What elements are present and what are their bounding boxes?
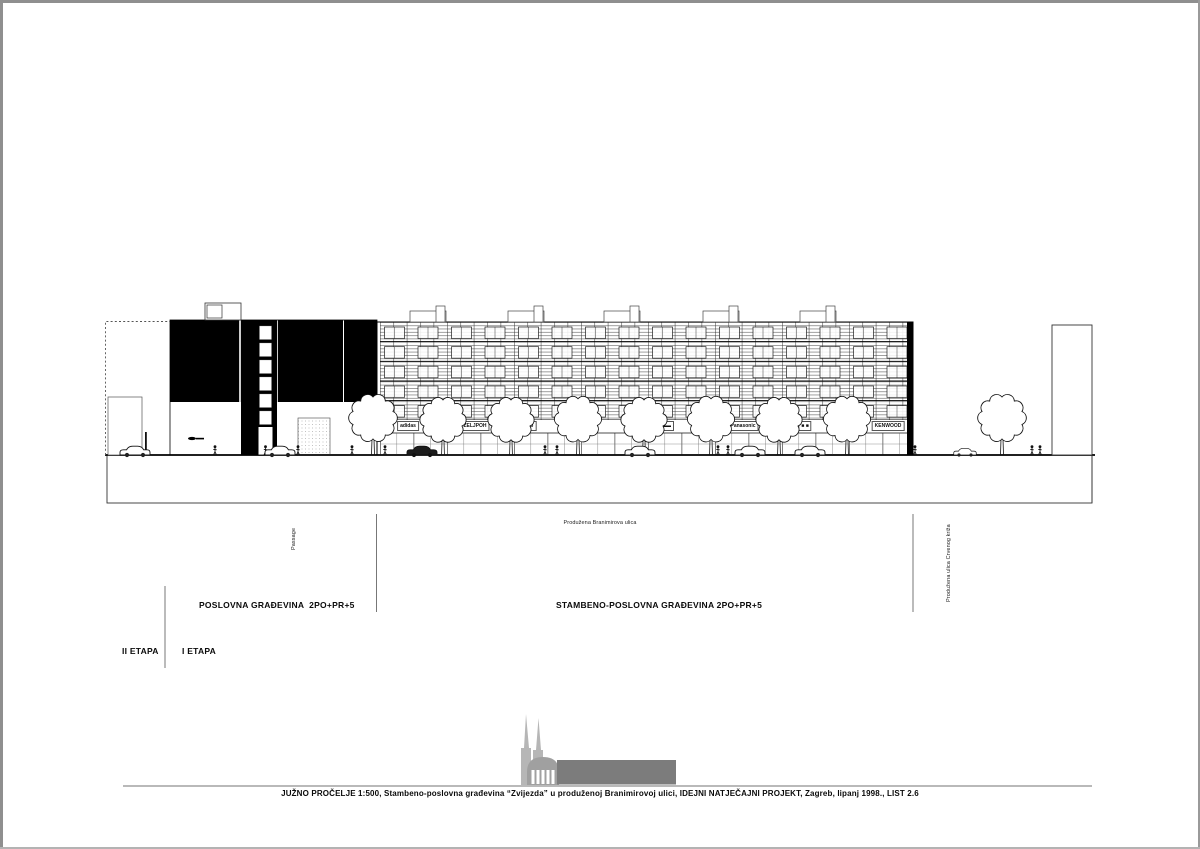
street-right-label: Produžena ulica Crvenog križa — [946, 526, 952, 602]
lamp-post — [145, 432, 147, 455]
office-building-black — [170, 303, 377, 455]
tower-entrance — [259, 427, 273, 455]
shop-sign: ZELJPOH — [460, 421, 489, 431]
scan-edge-top — [0, 0, 1200, 3]
stair-tower — [241, 320, 277, 455]
street-trees — [349, 395, 1027, 455]
annotation-lines — [165, 514, 913, 668]
street-foreground — [0, 0, 1200, 849]
shop-sign: adidas — [397, 421, 419, 431]
cathedral-silhouette — [521, 714, 543, 785]
pavilion-silhouette — [527, 757, 559, 785]
right-tower-building — [1052, 325, 1092, 503]
street-cars — [120, 446, 976, 457]
shop-logo-mark: ■ ■ — [798, 421, 811, 431]
tower-window-column — [260, 326, 272, 425]
building-right-label: STAMBENO-POSLOVNA GRAĐEVINA 2PO+PR+5 — [556, 600, 762, 610]
main-building-facade — [377, 306, 913, 455]
phase2-dashed-building — [106, 322, 171, 456]
street-people — [213, 445, 1041, 455]
sign-mark — [188, 437, 196, 440]
shop-sign: Panasonic — [727, 421, 758, 431]
phase-i-label: I ETAPA — [182, 646, 216, 656]
roof-boxes — [410, 306, 836, 322]
block-silhouette — [557, 760, 676, 785]
scan-edge-left — [0, 0, 3, 849]
end-wall — [907, 322, 913, 455]
signage-band — [377, 420, 908, 433]
roof-box — [205, 303, 241, 320]
shop-sign: KENWOOD — [872, 421, 905, 431]
shop-sign: OTT — [577, 421, 593, 431]
skyline-silhouette — [123, 714, 1092, 786]
shop-logo-mark: ▬▬ — [658, 421, 674, 431]
phase-ii-label: II ETAPA — [122, 646, 159, 656]
sheet-caption: JUŽNO PROČELJE 1:500, Stambeno-poslovna … — [281, 789, 919, 798]
street-center-label: Produžena Branimirova ulica — [563, 520, 636, 526]
floor-slab-lines — [377, 322, 913, 420]
elevation-sheet: adidas ZELJPOH daewoo OTT ▬▬ Panasonic ■… — [0, 0, 1200, 849]
building-left-label: POSLOVNA GRAĐEVINA 2PO+PR+5 — [199, 600, 355, 610]
ground-section-band — [105, 455, 1095, 503]
shop-sign: daewoo — [512, 421, 537, 431]
glass-storefront — [298, 418, 330, 455]
elevation-drawing — [0, 0, 1200, 849]
storefront-band — [380, 433, 907, 455]
passage-label: Passage — [291, 516, 297, 550]
